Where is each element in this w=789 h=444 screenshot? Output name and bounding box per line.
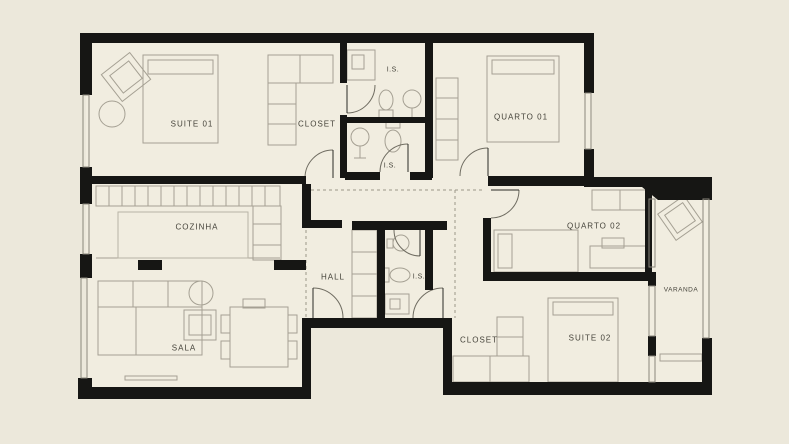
room-label-quarto-02: QUARTO 02 xyxy=(567,222,621,231)
room-label-suite-01: SUITE 01 xyxy=(171,120,214,129)
room-label-closet-bottom: CLOSET xyxy=(460,336,498,345)
room-label-cozinha: COZINHA xyxy=(176,223,219,232)
room-label-is-2: I.S. xyxy=(384,163,397,170)
room-label-is-1: I.S. xyxy=(387,67,400,74)
room-label-hall: HALL xyxy=(321,273,345,282)
room-label-quarto-01: QUARTO 01 xyxy=(494,113,548,122)
room-label-suite-02: SUITE 02 xyxy=(569,334,612,343)
room-label-is-3: I.S. xyxy=(413,274,426,281)
floor-plan-page: SUITE 01 CLOSET I.S. I.S. QUARTO 01 COZI… xyxy=(0,0,789,444)
floor-layer xyxy=(86,36,708,394)
room-label-closet-top: CLOSET xyxy=(298,120,336,129)
room-label-varanda: VARANDA xyxy=(664,287,698,294)
room-label-sala: SALA xyxy=(172,344,196,353)
